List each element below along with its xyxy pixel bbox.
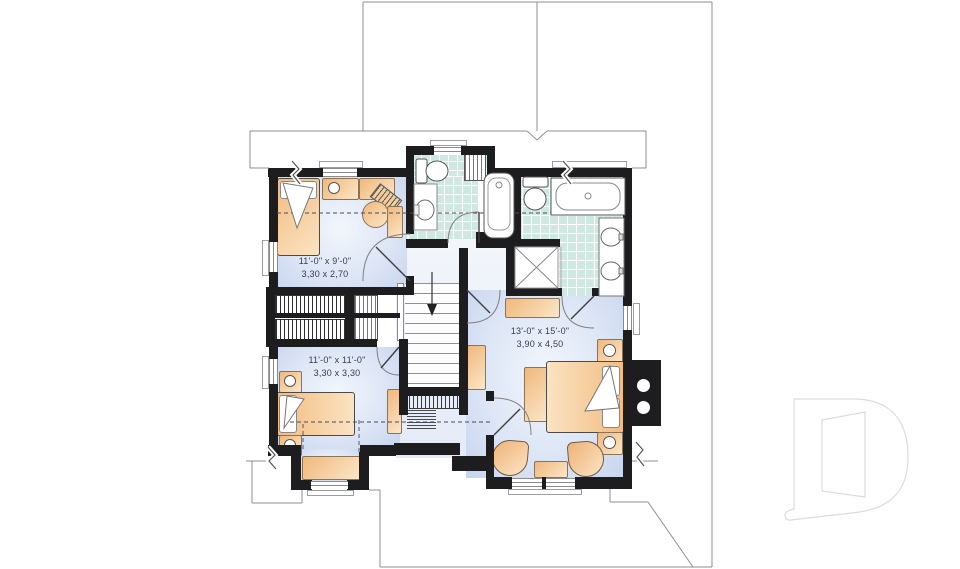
dim-imperial: 11'-0" x 9'-0"	[263, 255, 387, 268]
pedestal-sink	[414, 184, 437, 230]
dim-metric: 3,30 x 3,30	[275, 367, 399, 380]
bathtub	[484, 173, 514, 238]
room-dimension-label: 11'-0" x 9'-0" 3,30 x 2,70	[263, 255, 387, 281]
drummond-d-logo	[785, 399, 908, 520]
toilet	[416, 159, 448, 183]
stairs-arrow	[427, 272, 437, 316]
floor-plan: 11'-0" x 9'-0" 3,30 x 2,70 11'-0" x 11'-…	[0, 0, 960, 569]
garden-tub	[551, 178, 625, 215]
room-dimension-label: 11'-0" x 11'-0" 3,30 x 3,30	[275, 354, 399, 380]
room-dimension-label: 13'-0" x 15'-0" 3,90 x 4,50	[478, 325, 602, 351]
dim-metric: 3,90 x 4,50	[478, 338, 602, 351]
shower	[515, 247, 561, 288]
door-leaves	[376, 212, 594, 435]
door-arcs	[363, 212, 594, 435]
master-toilet	[523, 177, 548, 210]
dim-metric: 3,30 x 2,70	[263, 268, 387, 281]
plan-linework	[0, 0, 960, 569]
dim-imperial: 11'-0" x 11'-0"	[275, 354, 399, 367]
vanity-double-sinks	[599, 218, 624, 296]
roof-outline	[246, 2, 712, 567]
blanket-folds	[283, 183, 619, 428]
dim-imperial: 13'-0" x 15'-0"	[478, 325, 602, 338]
